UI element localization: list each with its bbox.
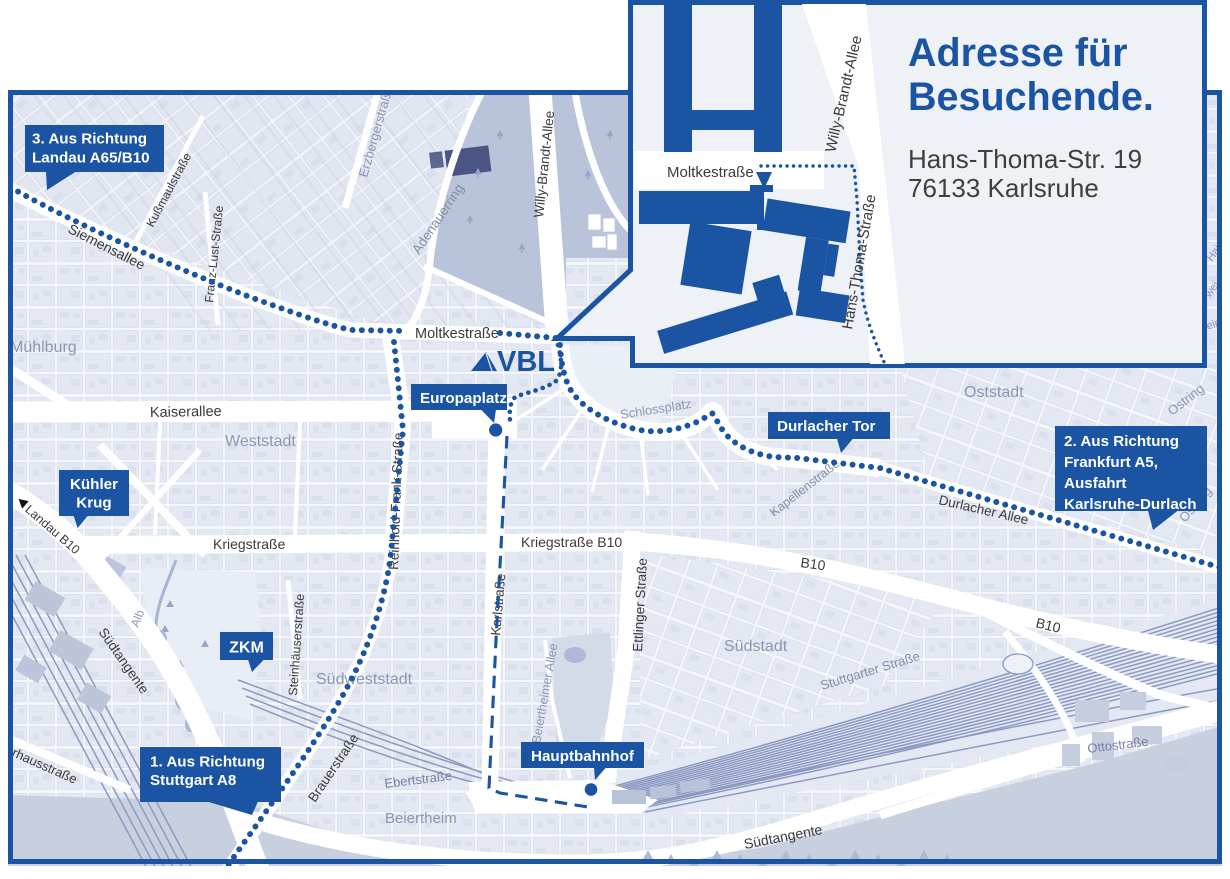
svg-text:Weststadt: Weststadt	[225, 433, 296, 450]
svg-text:Landau A65/B10: Landau A65/B10	[32, 150, 150, 167]
svg-text:Besuchende.: Besuchende.	[908, 75, 1154, 119]
svg-text:Südweststadt: Südweststadt	[316, 671, 413, 688]
svg-text:Ausfahrt: Ausfahrt	[1064, 475, 1126, 492]
svg-text:Krug: Krug	[76, 495, 111, 512]
svg-text:VBL: VBL	[497, 346, 555, 378]
svg-text:3. Aus Richtung: 3. Aus Richtung	[32, 131, 147, 148]
svg-text:76133 Karlsruhe: 76133 Karlsruhe	[908, 173, 1099, 203]
svg-text:Kaiserallee: Kaiserallee	[150, 404, 222, 421]
svg-text:Hans-Thoma-Str. 19: Hans-Thoma-Str. 19	[908, 144, 1142, 174]
svg-text:Südstadt: Südstadt	[724, 638, 788, 655]
svg-text:Hauptbahnhof: Hauptbahnhof	[531, 748, 635, 765]
svg-text:1. Aus Richtung: 1. Aus Richtung	[150, 754, 265, 771]
svg-text:Karlsruhe-Durlach: Karlsruhe-Durlach	[1064, 496, 1197, 513]
svg-text:Stuttgart A8: Stuttgart A8	[150, 772, 236, 789]
svg-text:Beiertheim: Beiertheim	[385, 810, 457, 827]
svg-text:Kühler: Kühler	[70, 476, 118, 493]
svg-text:Oststadt: Oststadt	[964, 384, 1024, 401]
svg-text:Frankfurt A5,: Frankfurt A5,	[1064, 454, 1158, 471]
svg-text:Europaplatz: Europaplatz	[420, 390, 507, 407]
svg-text:Adresse für: Adresse für	[908, 31, 1128, 75]
svg-text:Kriegstraße B10: Kriegstraße B10	[521, 534, 622, 550]
svg-text:2. Aus Richtung: 2. Aus Richtung	[1064, 433, 1179, 450]
svg-text:Durlacher Tor: Durlacher Tor	[777, 418, 876, 435]
svg-text:Mühlburg: Mühlburg	[10, 339, 77, 356]
svg-text:ZKM: ZKM	[229, 640, 264, 657]
svg-text:Moltkestraße: Moltkestraße	[415, 326, 499, 342]
svg-text:Moltkestraße: Moltkestraße	[667, 164, 754, 181]
svg-text:Kriegstraße: Kriegstraße	[213, 536, 286, 552]
